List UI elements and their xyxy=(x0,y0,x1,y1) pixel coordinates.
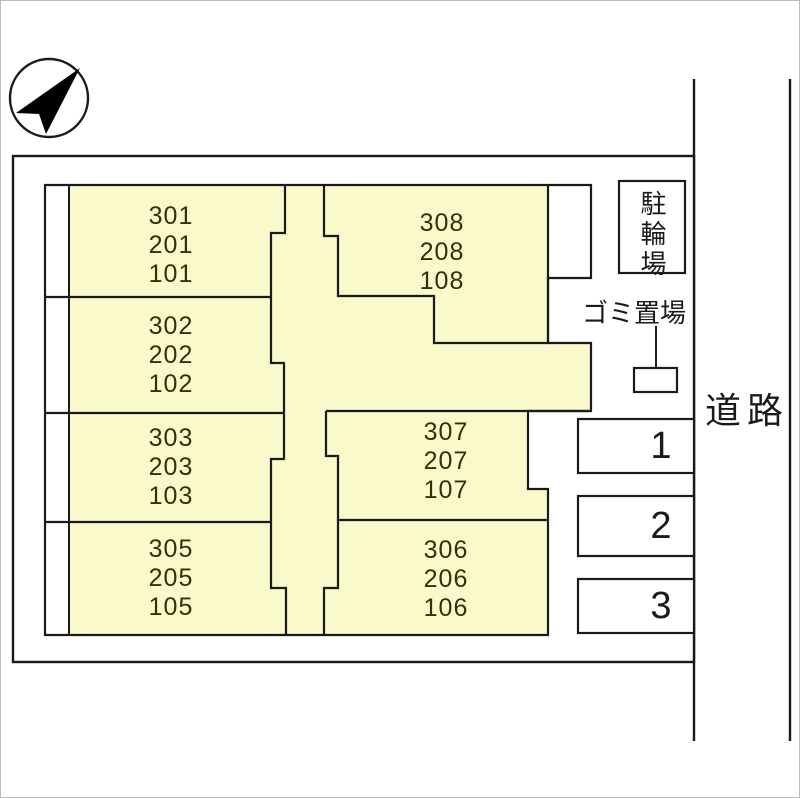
garbage-area-label: ゴミ置場 xyxy=(575,293,693,330)
unit-number: 207 xyxy=(386,447,506,476)
unit-number: 105 xyxy=(111,593,231,622)
parking-space-3-label: 3 xyxy=(601,587,721,625)
unit-number: 108 xyxy=(382,267,502,296)
unit-number: 301 xyxy=(111,202,231,231)
unit-number: 107 xyxy=(386,476,506,505)
unit-stack-303: 303 203 103 xyxy=(111,424,231,511)
unit-number: 206 xyxy=(386,565,506,594)
unit-number: 103 xyxy=(111,482,231,511)
unit-number: 101 xyxy=(111,260,231,289)
unit-number: 307 xyxy=(386,418,506,447)
entrance-white-area xyxy=(548,185,591,278)
unit-stack-305: 305 205 105 xyxy=(111,535,231,622)
site-plan-drawing xyxy=(1,1,800,798)
unit-number: 205 xyxy=(111,564,231,593)
unit-stack-302: 302 202 102 xyxy=(111,312,231,399)
unit-stack-307: 307 207 107 xyxy=(386,418,506,505)
parking-space-1-label: 1 xyxy=(601,427,721,465)
unit-stack-301: 301 201 101 xyxy=(111,202,231,289)
parking-space-2-label: 2 xyxy=(601,507,721,545)
unit-number: 203 xyxy=(111,453,231,482)
unit-number: 208 xyxy=(382,238,502,267)
unit-number: 106 xyxy=(386,594,506,623)
unit-number: 201 xyxy=(111,231,231,260)
unit-stack-308: 308 208 108 xyxy=(382,209,502,296)
unit-number: 102 xyxy=(111,370,231,399)
unit-number: 305 xyxy=(111,535,231,564)
unit-number: 303 xyxy=(111,424,231,453)
unit-stack-306: 306 206 106 xyxy=(386,536,506,623)
unit-number: 308 xyxy=(382,209,502,238)
bicycle-parking-label: 駐輪場 xyxy=(639,190,665,280)
garbage-box xyxy=(634,368,677,392)
site-plan: 301 201 101 302 202 102 303 203 103 305 … xyxy=(0,0,800,798)
unit-number: 302 xyxy=(111,312,231,341)
unit-number: 306 xyxy=(386,536,506,565)
balcony-strip xyxy=(45,185,69,635)
unit-number: 202 xyxy=(111,341,231,370)
